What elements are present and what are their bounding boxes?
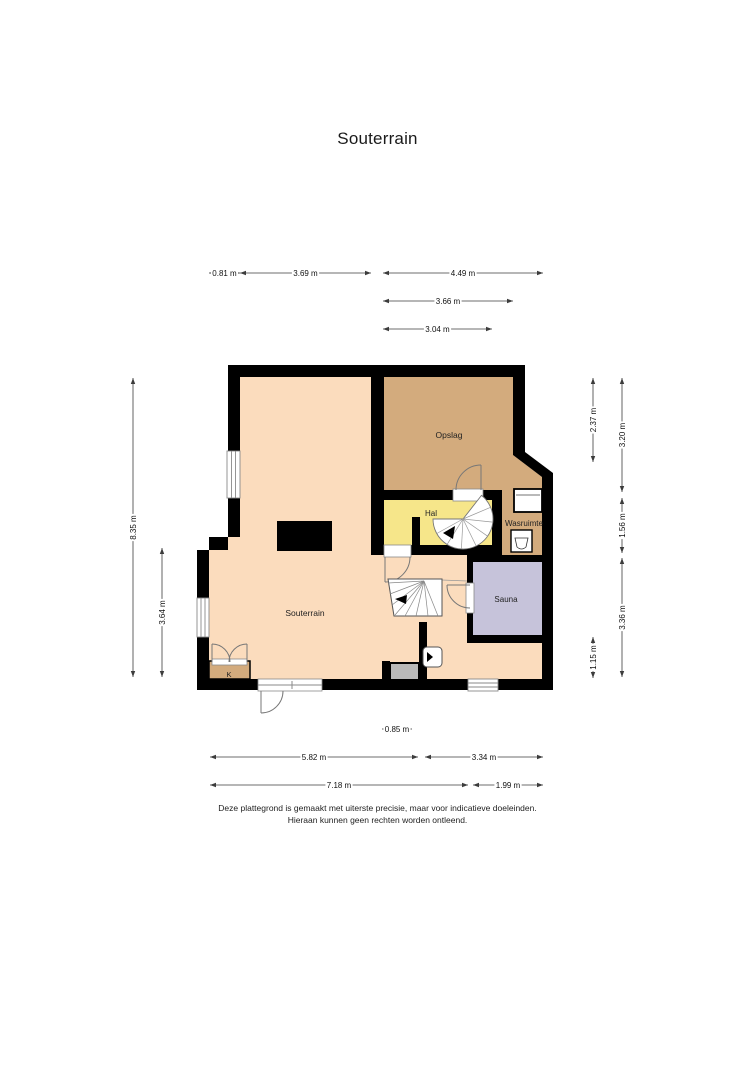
window-left-upper	[227, 451, 240, 498]
svg-text:8.35 m: 8.35 m	[129, 515, 138, 540]
wall-hall-stub	[412, 517, 420, 555]
room-label-kast: K	[226, 670, 231, 679]
svg-text:2.37 m: 2.37 m	[589, 407, 598, 432]
svg-text:0.81 m: 0.81 m	[212, 269, 237, 278]
room-label-opslag: Opslag	[436, 430, 463, 440]
dimension: 7.18 m	[210, 780, 468, 790]
dimension: 4.49 m	[383, 268, 543, 278]
svg-text:3.64 m: 3.64 m	[158, 600, 167, 625]
disclaimer-line2: Hieraan kunnen geen rechten worden ontle…	[0, 815, 755, 827]
dimension: 0.81 m	[209, 268, 240, 278]
disclaimer: Deze plattegrond is gemaakt met uiterste…	[0, 803, 755, 826]
dimension: 3.04 m	[383, 324, 492, 334]
floorplan-canvas: 0.81 m3.69 m4.49 m3.66 m3.04 m8.35 m3.64…	[0, 0, 755, 1067]
svg-text:3.20 m: 3.20 m	[618, 422, 627, 447]
dimension: 3.69 m	[240, 268, 371, 278]
svg-text:7.18 m: 7.18 m	[327, 781, 352, 790]
dimension: 0.85 m	[382, 724, 412, 734]
floorplan-page: Souterrain	[0, 0, 755, 1067]
dimension: 3.64 m	[157, 548, 167, 677]
door-exterior-bottom	[258, 679, 322, 713]
dimension: 3.20 m	[617, 378, 627, 492]
room-label-souterrain: Souterrain	[285, 608, 324, 618]
svg-text:3.66 m: 3.66 m	[436, 297, 461, 306]
wall-sauna-top	[467, 555, 543, 562]
disclaimer-line1: Deze plattegrond is gemaakt met uiterste…	[0, 803, 755, 815]
winder-staircase	[388, 579, 442, 616]
svg-text:1.99 m: 1.99 m	[496, 781, 521, 790]
svg-text:3.69 m: 3.69 m	[293, 269, 318, 278]
room-label-wasruimte: Wasruimte	[505, 519, 543, 528]
dimension: 1.15 m	[588, 637, 598, 678]
dimension: 8.35 m	[128, 378, 138, 677]
washing-machine-icon	[514, 489, 542, 512]
svg-text:0.85 m: 0.85 m	[385, 725, 410, 734]
room-label-hal: Hal	[425, 509, 437, 518]
dimension: 3.66 m	[383, 296, 513, 306]
svg-text:3.34 m: 3.34 m	[472, 753, 497, 762]
svg-text:1.15 m: 1.15 m	[589, 645, 598, 670]
chimney	[277, 521, 332, 551]
svg-text:1.56 m: 1.56 m	[618, 513, 627, 538]
dimension: 1.56 m	[617, 498, 627, 553]
wall-divider	[371, 377, 384, 555]
wall-sauna-bottom	[467, 635, 543, 643]
hatch-door-icon	[423, 647, 442, 667]
room-label-sauna: Sauna	[494, 595, 518, 604]
svg-text:4.49 m: 4.49 m	[451, 269, 476, 278]
svg-text:5.82 m: 5.82 m	[302, 753, 327, 762]
dimension: 3.36 m	[617, 558, 627, 677]
dimension: 2.37 m	[588, 378, 598, 462]
dimension: 1.99 m	[473, 780, 543, 790]
window-left-lower	[197, 598, 209, 637]
dimension: 3.34 m	[425, 752, 543, 762]
dimension: 5.82 m	[210, 752, 418, 762]
window-bottom	[468, 679, 498, 691]
svg-text:3.04 m: 3.04 m	[425, 325, 450, 334]
laundry-sink-icon	[511, 530, 532, 552]
svg-text:3.36 m: 3.36 m	[618, 605, 627, 630]
